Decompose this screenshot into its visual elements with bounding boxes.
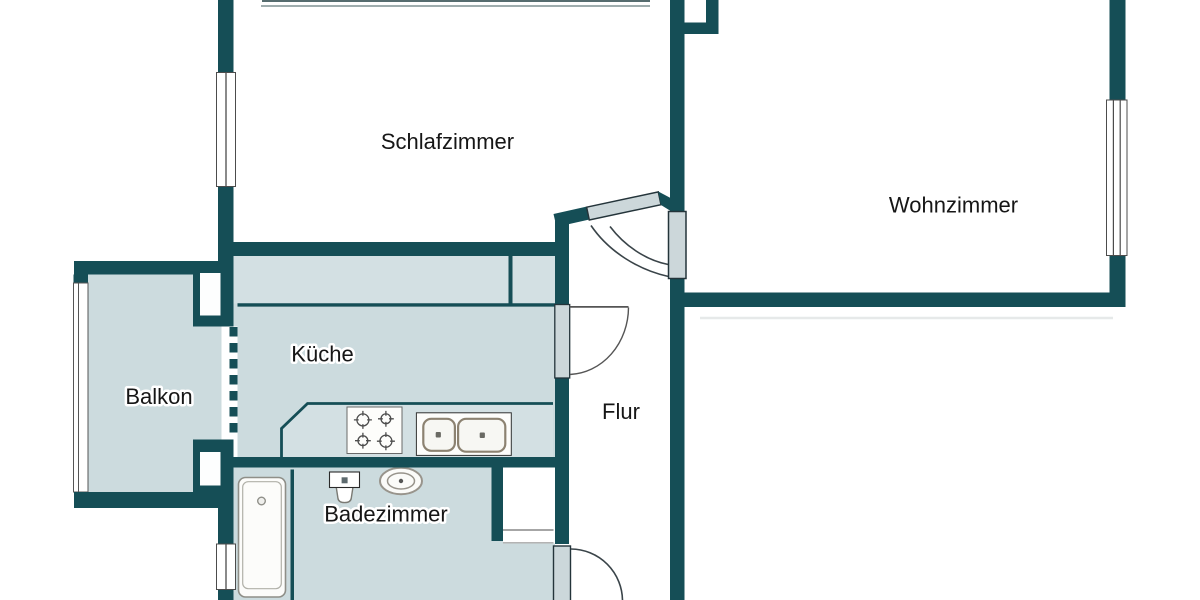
svg-text:Badezimmer: Badezimmer [324, 502, 447, 527]
svg-text:Balkon: Balkon [125, 384, 192, 409]
svg-text:Wohnzimmer: Wohnzimmer [889, 193, 1018, 218]
svg-text:Küche: Küche [291, 342, 353, 367]
svg-text:Flur: Flur [602, 399, 640, 424]
svg-text:Schlafzimmer: Schlafzimmer [381, 129, 514, 154]
